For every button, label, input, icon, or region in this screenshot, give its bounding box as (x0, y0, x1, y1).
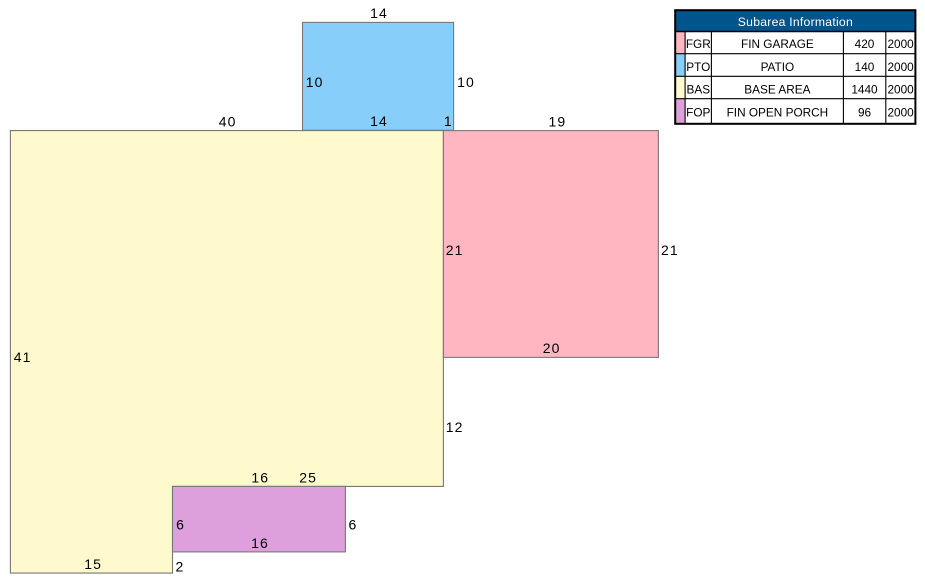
svg-text:40: 40 (219, 113, 237, 129)
svg-text:140: 140 (855, 60, 875, 74)
svg-text:16: 16 (251, 470, 269, 486)
svg-text:41: 41 (14, 349, 32, 365)
svg-text:16: 16 (251, 535, 269, 551)
svg-text:FIN GARAGE: FIN GARAGE (741, 37, 814, 51)
svg-text:2000: 2000 (887, 82, 914, 96)
svg-text:PATIO: PATIO (761, 60, 795, 74)
svg-text:BAS: BAS (686, 82, 710, 96)
svg-text:420: 420 (855, 37, 875, 51)
svg-text:1: 1 (444, 113, 453, 129)
svg-text:1440: 1440 (851, 82, 878, 96)
svg-text:BASE AREA: BASE AREA (744, 82, 810, 96)
svg-text:Subarea Information: Subarea Information (738, 15, 853, 29)
svg-text:PTO: PTO (686, 60, 710, 74)
svg-text:FGR: FGR (686, 37, 711, 51)
svg-text:FOP: FOP (686, 105, 710, 119)
svg-text:2000: 2000 (887, 60, 914, 74)
svg-text:21: 21 (661, 242, 679, 258)
svg-text:25: 25 (299, 470, 317, 486)
svg-text:19: 19 (549, 113, 567, 129)
svg-text:2000: 2000 (887, 37, 914, 51)
svg-text:6: 6 (349, 516, 358, 532)
svg-text:15: 15 (84, 556, 102, 572)
svg-text:6: 6 (176, 516, 185, 532)
svg-text:12: 12 (446, 419, 464, 435)
svg-text:10: 10 (306, 74, 324, 90)
svg-text:10: 10 (457, 74, 475, 90)
svg-text:2000: 2000 (887, 105, 914, 119)
svg-text:14: 14 (370, 113, 388, 129)
svg-text:FIN OPEN PORCH: FIN OPEN PORCH (727, 105, 829, 119)
svg-text:21: 21 (446, 242, 464, 258)
svg-text:14: 14 (370, 5, 388, 21)
svg-text:2: 2 (176, 559, 185, 575)
svg-text:96: 96 (858, 105, 872, 119)
svg-text:20: 20 (543, 340, 561, 356)
